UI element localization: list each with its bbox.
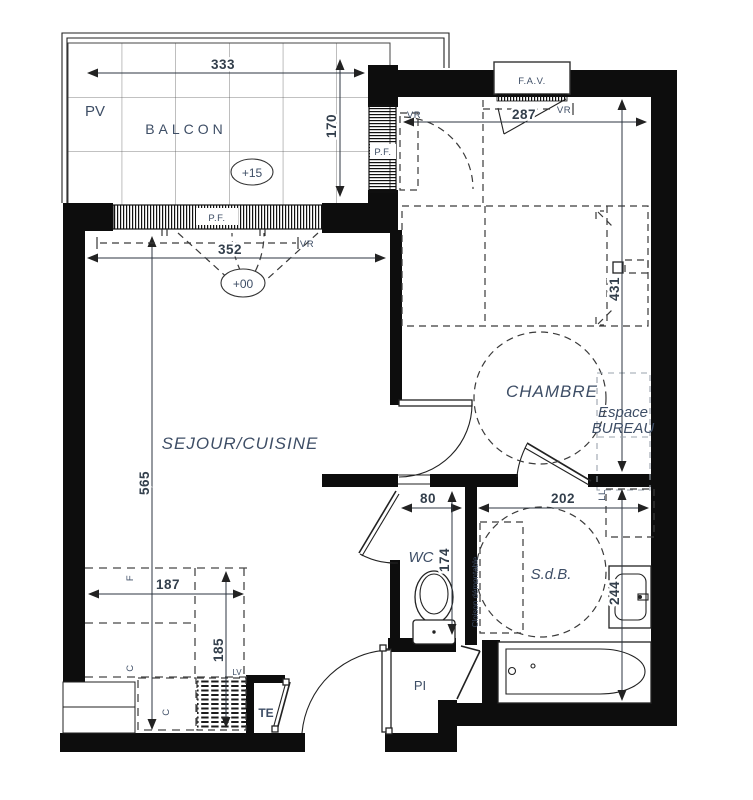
vr-label-chambre-left: VR: [407, 110, 421, 121]
sejour-level: +00: [233, 277, 254, 291]
dishwasher-label: LV: [232, 668, 242, 677]
dim-kitchen-width: 187: [156, 577, 180, 592]
dim-chambre-depth: 431: [607, 277, 622, 301]
dim-wc-depth: 174: [437, 548, 452, 572]
vr-label-sejour: VR: [300, 239, 314, 250]
te-label: TE: [258, 706, 273, 720]
dim-balcon-width: 333: [211, 57, 235, 72]
pf-label-sejour: P.F.: [208, 213, 225, 224]
bureau-label-1: Espace: [598, 404, 648, 421]
floor-plan-page: PV BALCON +15 +00 P.F. P.F. F.A.V. VR VR…: [0, 0, 753, 800]
door-entrance: [382, 649, 391, 732]
bureau-label-2: BUREAU: [592, 420, 655, 437]
door-chambre: [399, 400, 472, 406]
dishwasher-unit: [197, 678, 246, 730]
kitchen-unit: [138, 678, 196, 730]
toilet: [413, 571, 455, 644]
sdb-label: S.d.B.: [531, 566, 572, 583]
dim-balcon-depth: 170: [324, 114, 339, 138]
door-bifold: [457, 651, 480, 699]
dim-wc-width: 80: [420, 491, 436, 506]
pv-label: PV: [85, 103, 105, 120]
sejour-label: SEJOUR/CUISINE: [162, 434, 319, 453]
balcon-label: BALCON: [145, 121, 227, 137]
wc-label: WC: [409, 549, 434, 566]
dim-sdb-depth: 244: [607, 581, 622, 605]
door-wc: [359, 491, 396, 553]
dim-sdb-width: 202: [551, 491, 575, 506]
vr-label-chambre-top: VR: [557, 105, 571, 116]
kitchen-unit-label: C: [161, 708, 172, 715]
fav-label: F.A.V.: [518, 76, 545, 87]
door-sdb: [527, 443, 591, 481]
fridge-label: F: [125, 575, 136, 581]
hob-label: C: [125, 664, 136, 671]
dim-kitchen-depth: 185: [211, 638, 226, 662]
pf-label-chambre: P.F.: [374, 147, 391, 158]
dim-chambre-width: 287: [512, 107, 536, 122]
ll-label: LL: [597, 489, 608, 501]
dim-sejour-width: 352: [218, 242, 242, 257]
floor-plan-canvas: PV BALCON +15 +00 P.F. P.F. F.A.V. VR VR…: [0, 0, 753, 800]
balcon-level: +15: [242, 166, 263, 180]
bed-zone: [402, 206, 648, 326]
pi-label: PI: [414, 678, 426, 693]
dim-sejour-depth: 565: [137, 471, 152, 495]
cloison-label: Cloison démontable: [471, 556, 480, 627]
washer-zone: [606, 489, 654, 537]
chambre-label: CHAMBRE: [506, 382, 598, 401]
bathtub: [498, 642, 651, 703]
